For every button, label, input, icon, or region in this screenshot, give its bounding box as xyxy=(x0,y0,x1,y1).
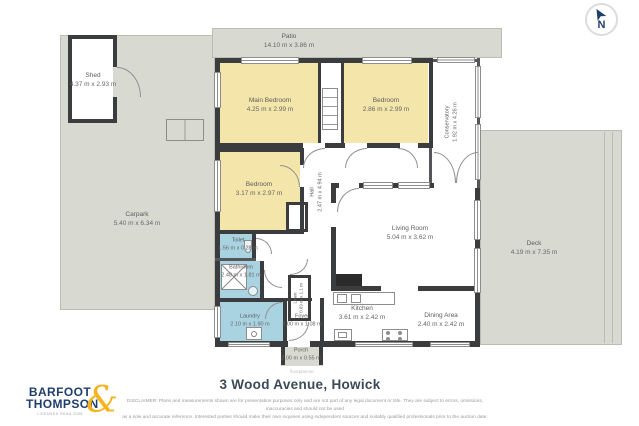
kitchen-appliance xyxy=(351,294,361,303)
window-marker xyxy=(363,182,393,189)
room-label-patio: Patio14.10 m x 3.86 m xyxy=(264,32,314,50)
hot-water-cupboard xyxy=(322,88,338,130)
wall-segment xyxy=(68,35,117,39)
window-marker xyxy=(362,57,412,64)
window-marker xyxy=(214,72,221,108)
wall-segment xyxy=(113,97,117,123)
carpark-storage-box xyxy=(166,119,204,141)
wall-segment xyxy=(418,286,480,291)
deck-step-line xyxy=(604,132,605,343)
logo-line2: THOMPSON xyxy=(26,398,94,410)
window-marker xyxy=(437,57,475,63)
room-label-main-bedroom: Main Bedroom4.25 m x 2.99 m xyxy=(247,96,294,114)
wall-segment xyxy=(331,188,336,203)
wall-segment xyxy=(325,143,345,148)
window-marker xyxy=(228,342,270,347)
wall-segment xyxy=(331,227,336,288)
room-label-dining: Dining Area2.40 m x 2.42 m xyxy=(418,311,465,329)
room-label-conservatory: Conservatory1.92 m x 4.26 m xyxy=(444,102,459,141)
wall-segment xyxy=(113,35,117,67)
room-label-carpark: Carpark5.40 m x 6.34 m xyxy=(114,210,161,228)
floorplan-page: N xyxy=(0,0,639,426)
room-label-toilet: Toilet1.56 m x 0.28 m xyxy=(218,237,257,252)
window-marker xyxy=(241,57,299,64)
wall-segment xyxy=(215,148,304,152)
disclaimer-line2: as a sole and accurate reference. Intere… xyxy=(115,414,495,422)
room-label-linen: Linen0.69 m x 1.1 m xyxy=(293,283,306,313)
compass: N xyxy=(585,3,618,36)
address-title: 3 Wood Avenue, Howick xyxy=(100,377,500,392)
room-label-laundry: Laundry2.10 m x 1.90 m xyxy=(230,313,269,328)
room-label-living-room: Living Room5.04 m x 3.62 m xyxy=(387,224,434,242)
window-marker xyxy=(355,342,413,347)
wall-segment xyxy=(341,61,344,143)
washing-machine xyxy=(246,327,262,340)
compass-n-label: N xyxy=(587,19,616,31)
wall-segment xyxy=(367,143,400,148)
window-marker xyxy=(475,66,481,118)
disclaimer-line1: DISCLAIMER: Plans and measurements shown… xyxy=(115,398,495,414)
window-marker xyxy=(398,182,430,189)
stove-burner xyxy=(386,331,390,335)
barfoot-thompson-logo: BARFOOT THOMPSON & LICENSED REAA 2008 xyxy=(26,386,106,416)
logo-tagline: LICENSED REAA 2008 xyxy=(26,412,94,416)
window-marker xyxy=(474,200,481,240)
disclaimer-text: DISCLAIMER: Plans and measurements shown… xyxy=(115,398,495,422)
room-label-hall: Hall2.47 m x 4.94 m xyxy=(309,172,324,211)
wall-segment xyxy=(331,286,381,291)
wall-segment xyxy=(215,258,256,261)
window-marker xyxy=(430,342,470,347)
room-label-bedroom-top: Bedroom2.86 m x 2.99 m xyxy=(363,96,410,114)
room-label-foyer: Foyer2.00 m x 1.08 m xyxy=(282,313,321,328)
deck-step-line xyxy=(612,132,613,343)
window-marker xyxy=(474,248,481,293)
wall-segment xyxy=(300,187,304,234)
fireplace xyxy=(336,274,362,286)
kitchen-sink-bowl xyxy=(338,332,347,338)
room-label-porch: Porch2.00 m x 0.55 m xyxy=(281,347,320,362)
wall-segment xyxy=(318,61,321,143)
window-marker xyxy=(214,306,221,338)
room-label-deck: Deck4.19 m x 7.35 m xyxy=(511,239,558,257)
wall-segment xyxy=(215,230,304,234)
wall-segment xyxy=(215,298,287,302)
bathroom-sink xyxy=(248,286,258,296)
wardrobe xyxy=(286,202,308,232)
area-patio xyxy=(212,28,502,58)
room-label-bedroom-mid: Bedroom3.17 m x 2.97 m xyxy=(236,180,283,198)
room-label-kitchen: Kitchen3.61 m x 2.42 m xyxy=(339,304,386,322)
area-deck xyxy=(480,130,622,345)
room-label-bathroom: Bathroom2.48 m x 1.81 m xyxy=(221,264,260,279)
wall-segment xyxy=(429,58,433,148)
logo-ampersand-icon: & xyxy=(86,380,118,421)
wall-segment xyxy=(68,119,117,123)
window-marker xyxy=(214,160,221,212)
kitchen-appliance xyxy=(337,294,347,303)
floorplan-watermark: floorplanner xyxy=(280,369,324,374)
room-label-shed: Shed4.37 m x 2.93 m xyxy=(70,71,117,89)
